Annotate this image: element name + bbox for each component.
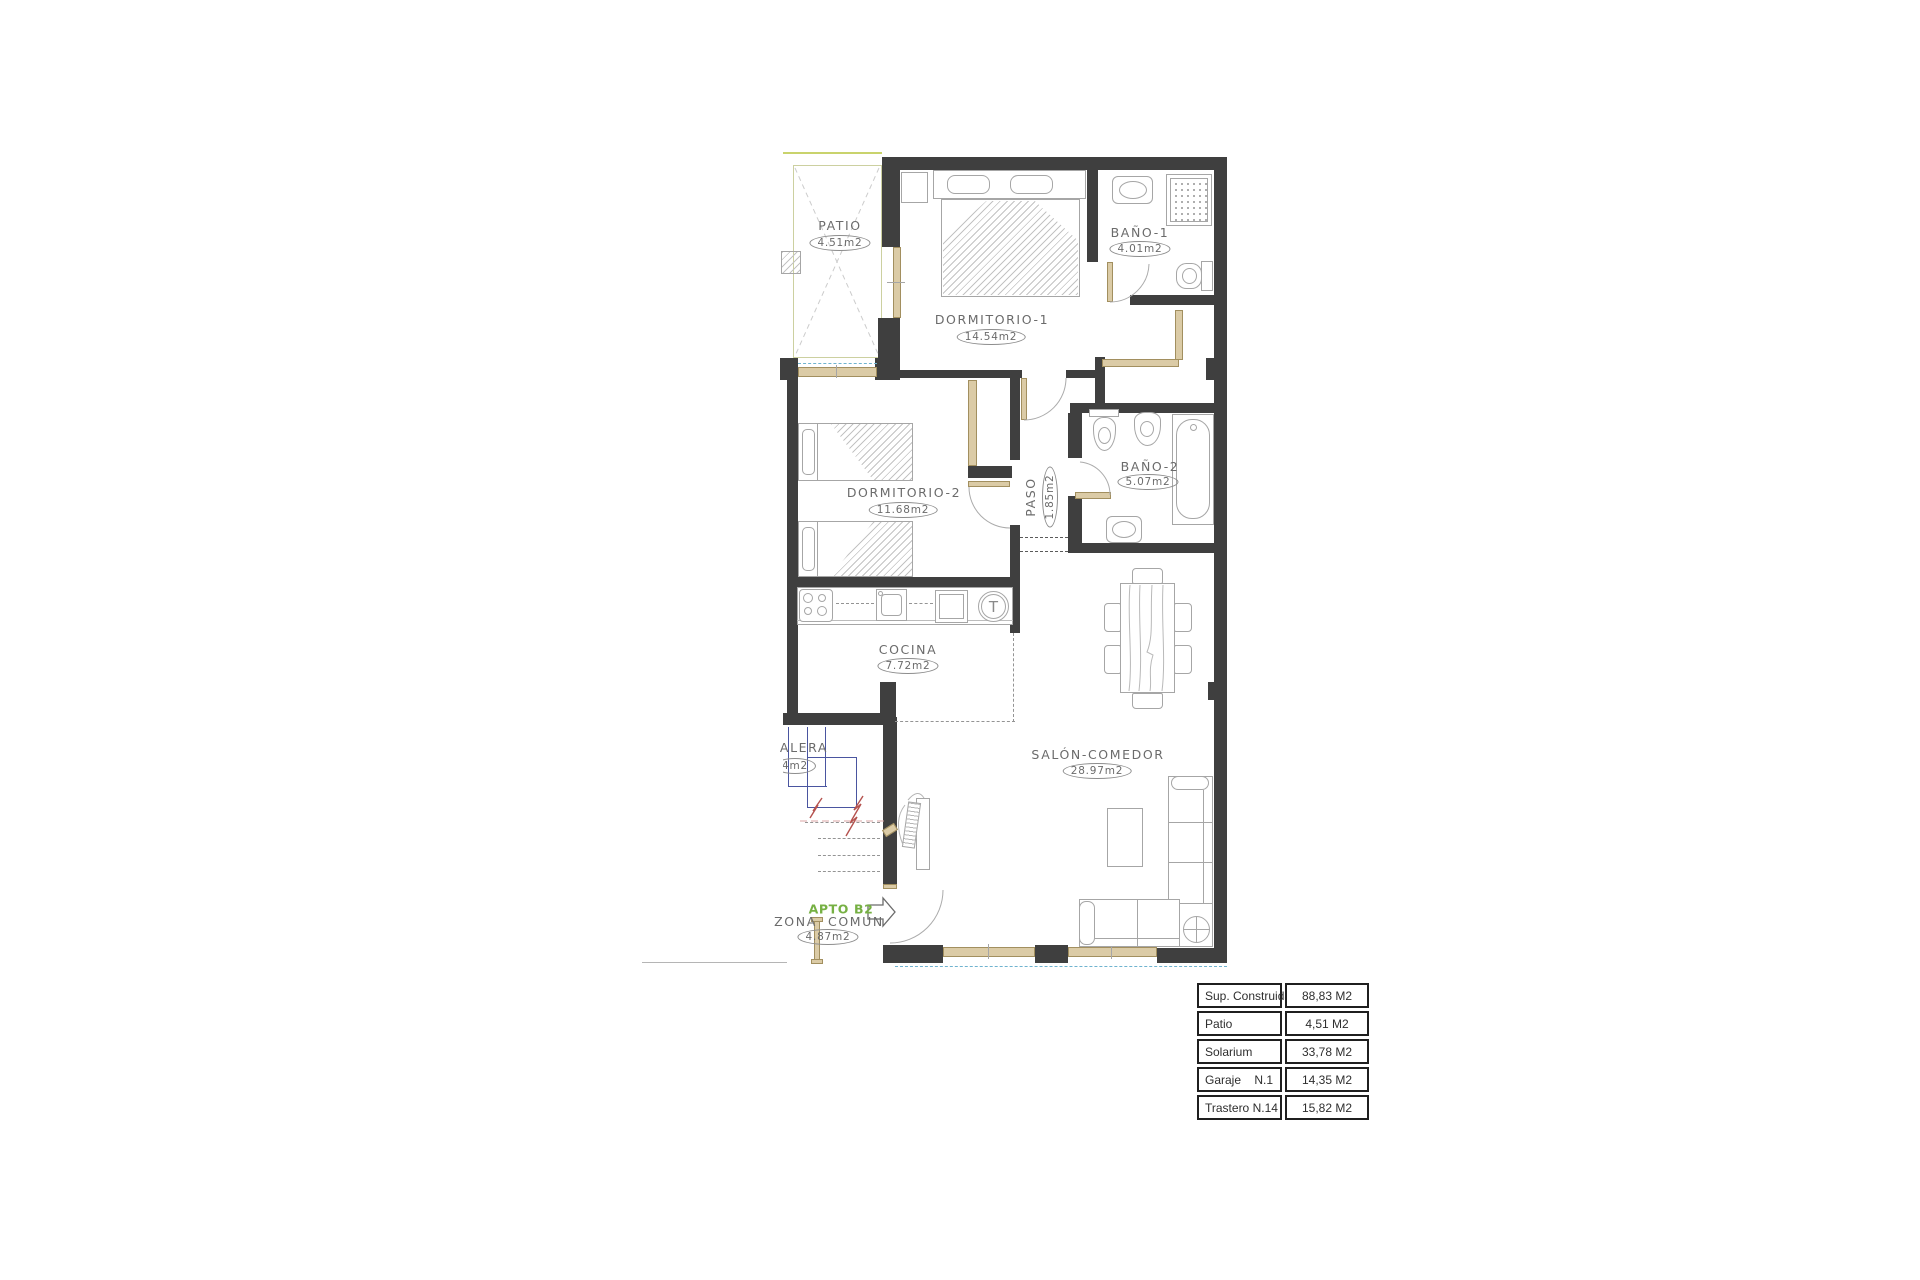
- room-area-dormitorio2: 11.68m2: [869, 502, 938, 518]
- room-label-patio: PATIO: [818, 220, 861, 233]
- room-label-bano2: BAÑO-2: [1121, 461, 1180, 474]
- line-overlay: [0, 0, 1920, 1280]
- room-area-bano1: 4.01m2: [1109, 241, 1170, 257]
- table-row: Patio 4,51 M2: [1197, 1011, 1369, 1036]
- table-value: 33,78 M2: [1285, 1039, 1369, 1064]
- table-wood-grain: [1139, 585, 1141, 691]
- table-label: Garaje N.1: [1197, 1067, 1282, 1092]
- summary-table: Sup. Construida 88,83 M2 Patio 4,51 M2 S…: [1197, 983, 1369, 1123]
- entrance-door-arc: [890, 890, 943, 943]
- table-value: 15,82 M2: [1285, 1095, 1369, 1120]
- table-row: Garaje N.1 14,35 M2: [1197, 1067, 1369, 1092]
- room-area-escalera-clip: 4m2: [783, 757, 819, 775]
- table-label: Trastero N.14: [1197, 1095, 1282, 1120]
- room-area-salon: 28.97m2: [1063, 763, 1132, 779]
- room-label-salon: SALÓN-COMEDOR: [1031, 749, 1164, 762]
- room-label-cocina: COCINA: [879, 644, 937, 657]
- table-wood-grain: [1147, 585, 1153, 691]
- table-row: Trastero N.14 15,82 M2: [1197, 1095, 1369, 1120]
- room-area-escalera: 4m2: [783, 758, 816, 774]
- table-wood-grain: [1162, 585, 1164, 691]
- armchair-wing: [898, 805, 905, 845]
- stair-break-mark: [810, 798, 822, 818]
- table-label: Sup. Construida: [1197, 983, 1282, 1008]
- room-label-paso: PASO: [1025, 477, 1038, 516]
- room-area-cocina: 7.72m2: [877, 658, 938, 674]
- room-label-dormitorio1: DORMITORIO-1: [935, 314, 1049, 327]
- table-wood-grain: [1129, 585, 1130, 691]
- table-value: 14,35 M2: [1285, 1067, 1369, 1092]
- table-value: 88,83 M2: [1285, 983, 1369, 1008]
- room-label-zona-comun: ZONA COMUN: [774, 916, 884, 929]
- table-value: 4,51 M2: [1285, 1011, 1369, 1036]
- door-arc-dorm2: [969, 487, 1010, 528]
- room-area-dormitorio1: 14.54m2: [957, 329, 1026, 345]
- door-arc-bano2: [1080, 462, 1110, 495]
- floor-plan-canvas: T: [0, 0, 1920, 1280]
- room-area-bano2: 5.07m2: [1117, 474, 1178, 490]
- table-label: Solarium: [1197, 1039, 1282, 1064]
- room-area-paso: 1.85m2: [1042, 466, 1058, 527]
- door-arc-bano1: [1110, 264, 1149, 302]
- room-area-patio: 4.51m2: [809, 235, 870, 251]
- table-row: Solarium 33,78 M2: [1197, 1039, 1369, 1064]
- armchair-wing: [908, 793, 924, 800]
- room-label-dormitorio2: DORMITORIO-2: [847, 487, 961, 500]
- table-label: Patio: [1197, 1011, 1282, 1036]
- room-area-zona-comun: 4.87m2: [797, 929, 858, 945]
- door-arc-dorm1: [1024, 378, 1066, 420]
- room-label-bano1: BAÑO-1: [1111, 227, 1170, 240]
- stair-break-mark: [846, 796, 863, 836]
- table-row: Sup. Construida 88,83 M2: [1197, 983, 1369, 1008]
- room-label-escalera: ALERA: [780, 742, 828, 755]
